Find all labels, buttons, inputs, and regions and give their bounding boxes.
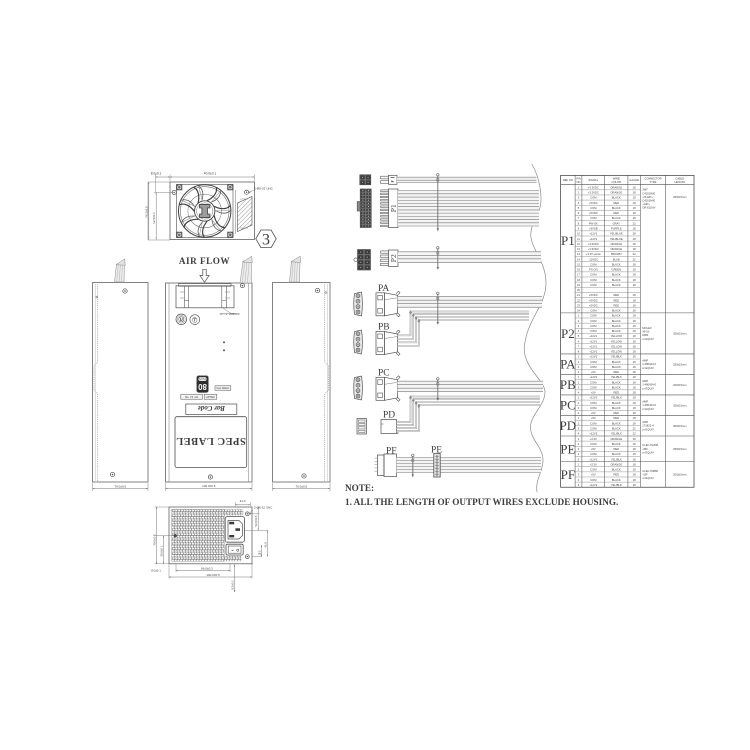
svg-text:AMP: AMP	[642, 359, 648, 363]
svg-text:1: 1	[578, 462, 580, 466]
svg-text:250±15mm: 250±15mm	[673, 403, 687, 407]
svg-text:BLACK: BLACK	[612, 401, 621, 405]
svg-text:18: 18	[633, 468, 636, 472]
svg-text:+5V: +5V	[591, 416, 596, 420]
svg-text:18: 18	[633, 242, 636, 246]
svg-text:+12V1: +12V1	[589, 237, 597, 241]
svg-text:18: 18	[633, 237, 636, 241]
svg-text:RED: RED	[613, 411, 619, 415]
svg-text:18: 18	[633, 473, 636, 477]
svg-text:PE: PE	[560, 441, 575, 456]
svg-text:1: 1	[578, 396, 580, 400]
svg-text:40.0±0.1: 40.0±0.1	[204, 171, 217, 175]
svg-text:4: 4	[578, 411, 580, 415]
svg-text:18: 18	[633, 211, 636, 215]
svg-text:COM: COM	[590, 468, 597, 472]
svg-text:YEL/BLUE: YEL/BLUE	[610, 232, 623, 236]
svg-text:3: 3	[578, 406, 580, 410]
svg-text:WIRE: WIRE	[613, 177, 620, 181]
svg-text:BLACK: BLACK	[612, 478, 621, 482]
svg-text:18: 18	[633, 344, 636, 348]
svg-text:TP*TP*050FW0: TP*TP*050FW0	[220, 312, 240, 316]
svg-text:18: 18	[633, 462, 636, 466]
svg-text:18: 18	[633, 293, 636, 297]
svg-text:RED: RED	[613, 447, 619, 451]
svg-text:BROWN: BROWN	[611, 252, 621, 256]
svg-text:+5V: +5V	[591, 447, 596, 451]
svg-text:or EQUIV: or EQUIV	[642, 407, 654, 411]
svg-text:RED: RED	[613, 391, 619, 395]
svg-text:18.5: 18.5	[258, 550, 262, 556]
svg-text:BLACK: BLACK	[612, 329, 621, 333]
svg-text:COM: COM	[590, 385, 597, 389]
svg-text:or EQUIV: or EQUIV	[642, 427, 654, 431]
svg-text:4: 4	[578, 391, 580, 395]
svg-text:PIN: PIN	[576, 177, 581, 181]
svg-text:COM: COM	[590, 452, 597, 456]
svg-text:YEL/BLK: YEL/BLK	[611, 396, 622, 400]
svg-text:+12V2: +12V2	[589, 432, 597, 436]
svg-text:COM: COM	[590, 401, 597, 405]
svg-text:YEL/BLK: YEL/BLK	[611, 375, 622, 379]
svg-text:P1: P1	[389, 204, 398, 212]
svg-text:8: 8	[578, 350, 580, 354]
svg-text:2: 2	[578, 468, 580, 472]
svg-text:BLACK: BLACK	[612, 426, 621, 430]
svg-text:18: 18	[633, 324, 636, 328]
svg-text:18: 18	[633, 447, 636, 451]
svg-text:6: 6	[578, 211, 580, 215]
svg-text:18: 18	[633, 452, 636, 456]
svg-text:COLOR: COLOR	[612, 180, 622, 184]
svg-text:24: 24	[577, 309, 580, 313]
svg-text:12.5±0.1: 12.5±0.1	[152, 212, 156, 224]
svg-text:AMP: AMP	[642, 400, 648, 404]
svg-text:P2: P2	[561, 326, 575, 341]
svg-text:18: 18	[633, 457, 636, 461]
svg-text:4: 4	[578, 201, 580, 205]
svg-text:YEL/BLK: YEL/BLK	[611, 432, 622, 436]
svg-text:PF: PF	[386, 447, 397, 457]
svg-text:18: 18	[633, 314, 636, 318]
svg-text:14: 14	[577, 257, 580, 261]
svg-text:6: 6	[578, 339, 580, 343]
svg-text:COM: COM	[590, 206, 597, 210]
svg-text:13: 13	[577, 252, 580, 256]
svg-text:COM: COM	[590, 421, 597, 425]
svg-text:22: 22	[577, 298, 580, 302]
svg-text:PLUS: PLUS	[199, 377, 206, 381]
svg-text:18: 18	[633, 268, 636, 272]
svg-text:18: 18	[633, 442, 636, 446]
svg-text:BLACK: BLACK	[612, 324, 621, 328]
svg-text:43.0: 43.0	[264, 542, 268, 548]
svg-text:or EQUIV: or EQUIV	[642, 337, 654, 341]
svg-text:BLACK: BLACK	[612, 319, 621, 323]
svg-text:+3.3VDC: +3.3VDC	[588, 185, 599, 189]
svg-text:22: 22	[633, 221, 636, 225]
svg-text:RED: RED	[613, 473, 619, 477]
svg-text:P1: P1	[561, 233, 575, 248]
svg-text:COM: COM	[590, 324, 597, 328]
svg-text:PURPLE: PURPLE	[611, 227, 622, 231]
svg-text:GREEN: GREEN	[612, 268, 622, 272]
svg-text:COM: COM	[590, 426, 597, 430]
svg-text:171822-4: 171822-4	[642, 424, 654, 428]
svg-text:18: 18	[633, 329, 636, 333]
svg-text:+3.3V: +3.3V	[590, 462, 597, 466]
svg-text:1. ALL THE LENGTH OF OUTPUT WI: 1. ALL THE LENGTH OF OUTPUT WIRES EXCLUD…	[345, 497, 618, 507]
svg-text:PS-ON: PS-ON	[589, 268, 598, 272]
svg-text:No. У4 .oH: No. У4 .oH	[185, 395, 198, 399]
svg-text:BLACK: BLACK	[612, 406, 621, 410]
svg-text:ORANGE: ORANGE	[610, 247, 622, 251]
svg-text:Bar Code: Bar Code	[198, 404, 226, 412]
svg-text:1-480424-0: 1-480424-0	[642, 403, 656, 407]
svg-text:BLACK: BLACK	[612, 216, 621, 220]
svg-text:+12V1: +12V1	[589, 232, 597, 236]
svg-text:TYPE: TYPE	[649, 180, 656, 184]
svg-text:18: 18	[633, 421, 636, 425]
svg-text:15: 15	[577, 262, 580, 266]
svg-text:18: 18	[633, 191, 636, 195]
svg-text:2080: 2080	[642, 333, 648, 337]
svg-text:COM: COM	[590, 196, 597, 200]
svg-text:18: 18	[633, 370, 636, 374]
svg-text:BLACK: BLACK	[612, 380, 621, 384]
svg-text:C4201H00: C4201H00	[642, 199, 655, 203]
svg-text:or EQUIV: or EQUIV	[642, 476, 654, 480]
svg-text:BLACK: BLACK	[612, 421, 621, 425]
svg-text:+12V2: +12V2	[589, 355, 597, 359]
svg-text:-A4P+: -A4P+	[642, 202, 650, 206]
svg-text:COM: COM	[590, 283, 597, 287]
svg-text:2: 2	[578, 191, 580, 195]
svg-text:+5V: +5V	[591, 411, 596, 415]
svg-text:18: 18	[633, 227, 636, 231]
svg-text:+12V2: +12V2	[589, 457, 597, 461]
svg-text:22: 22	[633, 432, 636, 436]
svg-text:+3.3V: +3.3V	[590, 437, 597, 441]
svg-text:YELLOW: YELLOW	[611, 344, 623, 348]
svg-text:+5VSB: +5VSB	[589, 227, 598, 231]
svg-text:APTEK: APTEK	[206, 395, 215, 399]
svg-text:18: 18	[633, 355, 636, 359]
svg-text:4: 4	[578, 370, 580, 374]
svg-text:18: 18	[633, 365, 636, 369]
svg-text:YEL/BLUE: YEL/BLUE	[610, 237, 623, 241]
svg-text:22: 22	[633, 252, 636, 256]
svg-text:COM: COM	[590, 216, 597, 220]
svg-text:18: 18	[633, 206, 636, 210]
svg-text:ORANGE: ORANGE	[610, 185, 622, 189]
svg-text:C4201H00: C4201H00	[642, 191, 655, 195]
svg-text:18: 18	[633, 350, 636, 354]
svg-text:COM: COM	[590, 319, 597, 323]
svg-text:80: 80	[198, 382, 207, 391]
svg-text:300±15mm: 300±15mm	[673, 424, 687, 428]
svg-text:5: 5	[578, 483, 580, 487]
svg-text:2-Ø6-32 UNC: 2-Ø6-32 UNC	[254, 187, 274, 191]
svg-text:+3.3VDC: +3.3VDC	[588, 191, 599, 195]
svg-text:COM: COM	[590, 314, 597, 318]
svg-text:CLEC PL838: CLEC PL838	[642, 443, 658, 447]
svg-text:18: 18	[633, 273, 636, 277]
svg-text:2: 2	[578, 319, 580, 323]
svg-text:18: 18	[633, 385, 636, 389]
svg-text:18: 18	[633, 216, 636, 220]
svg-text:AMP: AMP	[642, 420, 648, 424]
svg-text:2: 2	[578, 380, 580, 384]
svg-text:1: 1	[578, 416, 580, 420]
svg-text:RED: RED	[613, 293, 619, 297]
svg-text:18: 18	[633, 196, 636, 200]
svg-text:P2: P2	[389, 254, 398, 262]
svg-text:4: 4	[578, 452, 580, 456]
svg-text:RED: RED	[613, 303, 619, 307]
svg-text:COM: COM	[590, 442, 597, 446]
svg-text:ORANGE: ORANGE	[610, 242, 622, 246]
svg-text:+5V: +5V	[591, 370, 596, 374]
svg-text:3: 3	[578, 324, 580, 328]
svg-text:YEL/BLK: YEL/BLK	[611, 483, 622, 487]
svg-text:YEL/BLK: YEL/BLK	[611, 457, 622, 461]
svg-text:+12V2: +12V2	[589, 375, 597, 379]
svg-text:1-480424-0: 1-480424-0	[642, 362, 656, 366]
svg-text:2: 2	[578, 401, 580, 405]
svg-text:RED: RED	[613, 211, 619, 215]
svg-text:COM: COM	[590, 262, 597, 266]
svg-text:+3.3V sense: +3.3V sense	[586, 252, 602, 256]
svg-text:22: 22	[633, 257, 636, 261]
svg-text:COM: COM	[590, 273, 597, 277]
svg-text:70.0±0.5: 70.0±0.5	[295, 484, 307, 488]
svg-text:BLACK: BLACK	[612, 360, 621, 364]
svg-text:AMP: AMP	[642, 379, 648, 383]
svg-text:COM: COM	[590, 329, 597, 333]
svg-text:YELLOW: YELLOW	[611, 339, 623, 343]
svg-text:YEL/BLK: YEL/BLK	[611, 355, 622, 359]
svg-text:+5VDC: +5VDC	[589, 211, 598, 215]
svg-text:5: 5	[578, 457, 580, 461]
svg-text:3: 3	[578, 385, 580, 389]
svg-text:GAUGE: GAUGE	[629, 178, 639, 182]
svg-text:YELLOW: YELLOW	[611, 334, 623, 338]
svg-text:BLACK: BLACK	[612, 309, 621, 313]
svg-text:JWT: JWT	[642, 188, 648, 192]
svg-text:18: 18	[633, 416, 636, 420]
svg-text:18: 18	[633, 303, 636, 307]
svg-text:PA: PA	[560, 357, 576, 372]
svg-text:3: 3	[578, 196, 580, 200]
svg-text:BLACK: BLACK	[612, 314, 621, 318]
svg-text:18: 18	[633, 406, 636, 410]
svg-text:REF NO: REF NO	[563, 178, 573, 182]
svg-text:PC: PC	[560, 398, 576, 413]
svg-text:-2X12P+: -2X12P+	[642, 195, 653, 199]
svg-text:5: 5	[578, 206, 580, 210]
svg-text:76.3±0.5: 76.3±0.5	[144, 206, 148, 218]
svg-text:19: 19	[577, 283, 580, 287]
svg-text:2: 2	[578, 421, 580, 425]
svg-text:9.5±0.1: 9.5±0.1	[231, 580, 235, 590]
svg-text:10: 10	[577, 232, 580, 236]
svg-text:+12V2: +12V2	[589, 483, 597, 487]
svg-text:1: 1	[578, 185, 580, 189]
svg-text:18: 18	[577, 278, 580, 282]
svg-text:CLEC P0880: CLEC P0880	[642, 469, 658, 473]
svg-text:BLACK: BLACK	[612, 196, 621, 200]
svg-text:CABLE: CABLE	[675, 177, 684, 181]
svg-text:2: 2	[578, 360, 580, 364]
svg-text:1: 1	[578, 437, 580, 441]
svg-text:+12V2: +12V2	[589, 396, 597, 400]
svg-text:BLACK: BLACK	[612, 385, 621, 389]
svg-text:30.0±0.1: 30.0±0.1	[160, 545, 164, 556]
svg-text:18: 18	[633, 185, 636, 189]
svg-text:AIR FLOW: AIR FLOW	[179, 256, 231, 266]
svg-text:18: 18	[633, 411, 636, 415]
svg-text:22: 22	[633, 426, 636, 430]
svg-text:RED: RED	[613, 370, 619, 374]
svg-text:+12V1: +12V1	[589, 339, 597, 343]
svg-text:COM: COM	[590, 365, 597, 369]
svg-text:ORANGE: ORANGE	[610, 191, 622, 195]
svg-text:39-01-: 39-01-	[642, 330, 650, 334]
svg-text:12: 12	[577, 242, 580, 246]
svg-text:18: 18	[633, 396, 636, 400]
svg-text:PW-OK: PW-OK	[589, 221, 598, 225]
svg-text:BLACK: BLACK	[612, 468, 621, 472]
svg-text:100.0±0.5: 100.0±0.5	[202, 484, 216, 488]
svg-text:70.0±0.5: 70.0±0.5	[114, 484, 126, 488]
svg-text:BLACK: BLACK	[612, 206, 621, 210]
svg-text:CONNECTOR: CONNECTOR	[644, 177, 661, 181]
svg-text:SPEC LABEL: SPEC LABEL	[176, 435, 246, 446]
svg-text:31.0: 31.0	[240, 499, 246, 503]
svg-text:11: 11	[577, 237, 580, 241]
svg-text:18: 18	[633, 319, 636, 323]
svg-text:18: 18	[633, 391, 636, 395]
svg-text:18: 18	[633, 278, 636, 282]
svg-text:+5VDC: +5VDC	[589, 293, 598, 297]
svg-text:2-Ø6-32 UNC: 2-Ø6-32 UNC	[254, 506, 273, 510]
svg-text:RED: RED	[613, 416, 619, 420]
svg-text:18: 18	[633, 232, 636, 236]
svg-text:3: 3	[262, 232, 270, 249]
svg-text:COM: COM	[590, 406, 597, 410]
svg-text:3: 3	[578, 447, 580, 451]
svg-text:+5VDC: +5VDC	[589, 298, 598, 302]
svg-text:COM: COM	[590, 478, 597, 482]
svg-text:NO: NO	[576, 180, 580, 184]
svg-text:COM: COM	[590, 278, 597, 282]
svg-text:18: 18	[633, 380, 636, 384]
svg-text:18: 18	[633, 201, 636, 205]
svg-text:GRAY: GRAY	[613, 221, 621, 225]
svg-text:or EQUIV: or EQUIV	[642, 450, 654, 454]
svg-text:PD: PD	[383, 411, 395, 421]
svg-text:+12V1: +12V1	[589, 350, 597, 354]
svg-text:+5VDC: +5VDC	[589, 303, 598, 307]
svg-text:18: 18	[633, 375, 636, 379]
svg-text:NOTE:: NOTE:	[345, 483, 374, 493]
svg-text:+5V: +5V	[591, 391, 596, 395]
svg-text:18: 18	[633, 247, 636, 251]
svg-text:COM: COM	[590, 309, 597, 313]
svg-text:-15F: -15F	[642, 472, 648, 476]
svg-text:250±15mm: 250±15mm	[673, 332, 687, 336]
svg-text:21: 21	[577, 293, 580, 297]
svg-text:3: 3	[578, 365, 580, 369]
svg-text:200±15mm: 200±15mm	[673, 473, 687, 477]
svg-text:250±15mm: 250±15mm	[673, 195, 687, 199]
svg-text:PB: PB	[378, 323, 390, 333]
svg-text:+3.3VDC: +3.3VDC	[588, 242, 599, 246]
svg-text:or EQUIV: or EQUIV	[642, 366, 654, 370]
svg-text:BLUE: BLUE	[613, 257, 620, 261]
svg-text:8.0±0.1: 8.0±0.1	[151, 569, 161, 573]
svg-text:18: 18	[633, 309, 636, 313]
svg-text:RED: RED	[613, 298, 619, 302]
svg-text:COM: COM	[590, 360, 597, 364]
svg-text:17: 17	[577, 273, 580, 277]
svg-text:OR EQUIV: OR EQUIV	[642, 206, 655, 210]
svg-text:YELLOW: YELLOW	[611, 350, 623, 354]
svg-text:BLACK: BLACK	[612, 442, 621, 446]
svg-text:18: 18	[633, 401, 636, 405]
svg-text:200±15mm: 200±15mm	[673, 383, 687, 387]
svg-text:+5VDC: +5VDC	[589, 201, 598, 205]
svg-text:18: 18	[633, 262, 636, 266]
svg-text:9: 9	[578, 227, 580, 231]
svg-text:1: 1	[578, 375, 580, 379]
svg-text:BLACK: BLACK	[612, 262, 621, 266]
svg-text:18: 18	[633, 298, 636, 302]
svg-text:+3.3VDC: +3.3VDC	[588, 247, 599, 251]
svg-text:16: 16	[577, 268, 580, 272]
svg-text:18: 18	[633, 360, 636, 364]
svg-text:Ⓤ: Ⓤ	[179, 316, 185, 324]
svg-text:BLACK: BLACK	[612, 278, 621, 282]
svg-text:8.0±0.1: 8.0±0.1	[151, 171, 162, 175]
svg-text:18: 18	[633, 478, 636, 482]
svg-text:SIGNAL: SIGNAL	[588, 178, 598, 182]
svg-text:LENGTH: LENGTH	[674, 180, 685, 184]
svg-text:+5V: +5V	[591, 473, 596, 477]
svg-text:MOLEX: MOLEX	[642, 326, 652, 330]
svg-text:BLACK: BLACK	[612, 273, 621, 277]
svg-text:18: 18	[633, 483, 636, 487]
svg-text:1-480424-0: 1-480424-0	[642, 383, 656, 387]
svg-text:-12VDC: -12VDC	[589, 257, 599, 261]
svg-text:+12V1: +12V1	[589, 334, 597, 338]
svg-text:BLACK: BLACK	[612, 283, 621, 287]
svg-text:20: 20	[577, 288, 580, 292]
svg-text:Ⓣ: Ⓣ	[192, 317, 197, 324]
svg-text:1: 1	[578, 355, 580, 359]
svg-text:2: 2	[578, 442, 580, 446]
svg-text:RED: RED	[613, 201, 619, 205]
svg-text:18: 18	[633, 437, 636, 441]
svg-text:100.0±0.5: 100.0±0.5	[206, 573, 220, 577]
svg-text:-05F: -05F	[642, 447, 648, 451]
svg-text:18: 18	[633, 283, 636, 287]
svg-text:PD: PD	[560, 418, 577, 433]
svg-text:7: 7	[578, 344, 580, 348]
svg-text:8: 8	[578, 221, 580, 225]
svg-text:4: 4	[578, 478, 580, 482]
